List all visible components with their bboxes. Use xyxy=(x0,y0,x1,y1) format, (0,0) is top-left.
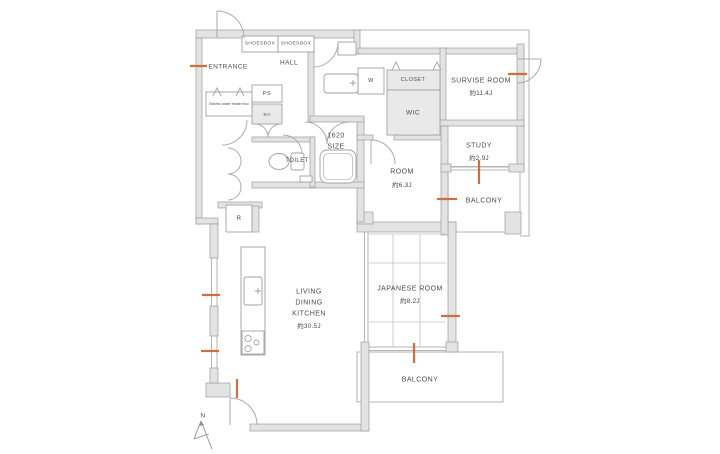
cabinet-box xyxy=(338,42,356,55)
label-japanese-room: JAPANESE ROOM xyxy=(377,286,443,293)
label-electric-water-heater: Electric water heater box xyxy=(209,102,249,106)
label-compass-north: N xyxy=(200,413,205,420)
label-bath-1620: 1620 xyxy=(327,133,344,140)
area-japanese-room: 約8.2J xyxy=(400,295,420,305)
label-hall: HALL xyxy=(280,60,298,67)
label-toilet: TOILET xyxy=(285,158,309,164)
label-shoesbox-right: SHOESBOX xyxy=(281,42,312,47)
label-meter-box: Box xyxy=(264,112,271,117)
room-door-arc xyxy=(371,140,395,164)
label-balcony-right: BALCONY xyxy=(466,198,503,205)
washroom-door-arc xyxy=(313,42,338,67)
fold-door-marks-closet xyxy=(392,62,441,70)
label-survise-room: SURVISE ROOM xyxy=(451,78,511,85)
area-room: 約6.3J xyxy=(392,179,412,189)
storage-door-arcs xyxy=(255,124,281,137)
label-ldk-kitchen: KITCHEN xyxy=(292,311,326,318)
floor-plan-drawing xyxy=(0,0,720,454)
label-wic: WIC xyxy=(406,109,420,116)
hall-closet-door-arcs xyxy=(228,148,241,200)
label-room: ROOM xyxy=(390,169,414,176)
floor-plan: SHOESBOX SHOESBOX ENTRANCE HALL Electric… xyxy=(0,0,720,454)
area-survise-room: 約11.4J xyxy=(469,87,492,97)
label-refrigerator: R xyxy=(237,216,242,222)
north-compass-icon xyxy=(194,421,212,449)
paper-holder xyxy=(300,176,312,182)
label-entrance: ENTRANCE xyxy=(208,64,247,71)
ldk-door-arc xyxy=(230,398,257,425)
label-bath-size: SIZE xyxy=(327,144,344,151)
label-closet: CLOSET xyxy=(401,77,426,83)
label-shoesbox-left: SHOESBOX xyxy=(245,42,276,47)
label-balcony-bottom: BALCONY xyxy=(402,377,439,384)
label-ldk-living: LIVING xyxy=(296,289,322,296)
area-study: 約2.9J xyxy=(469,152,489,162)
label-washer: W xyxy=(368,78,374,84)
label-ps: PS xyxy=(263,91,271,97)
area-ldk: 約30.5J xyxy=(297,320,321,330)
label-study: STUDY xyxy=(466,143,492,150)
label-ldk-dining: DINING xyxy=(295,300,322,307)
corridor-door-arc xyxy=(222,120,247,145)
